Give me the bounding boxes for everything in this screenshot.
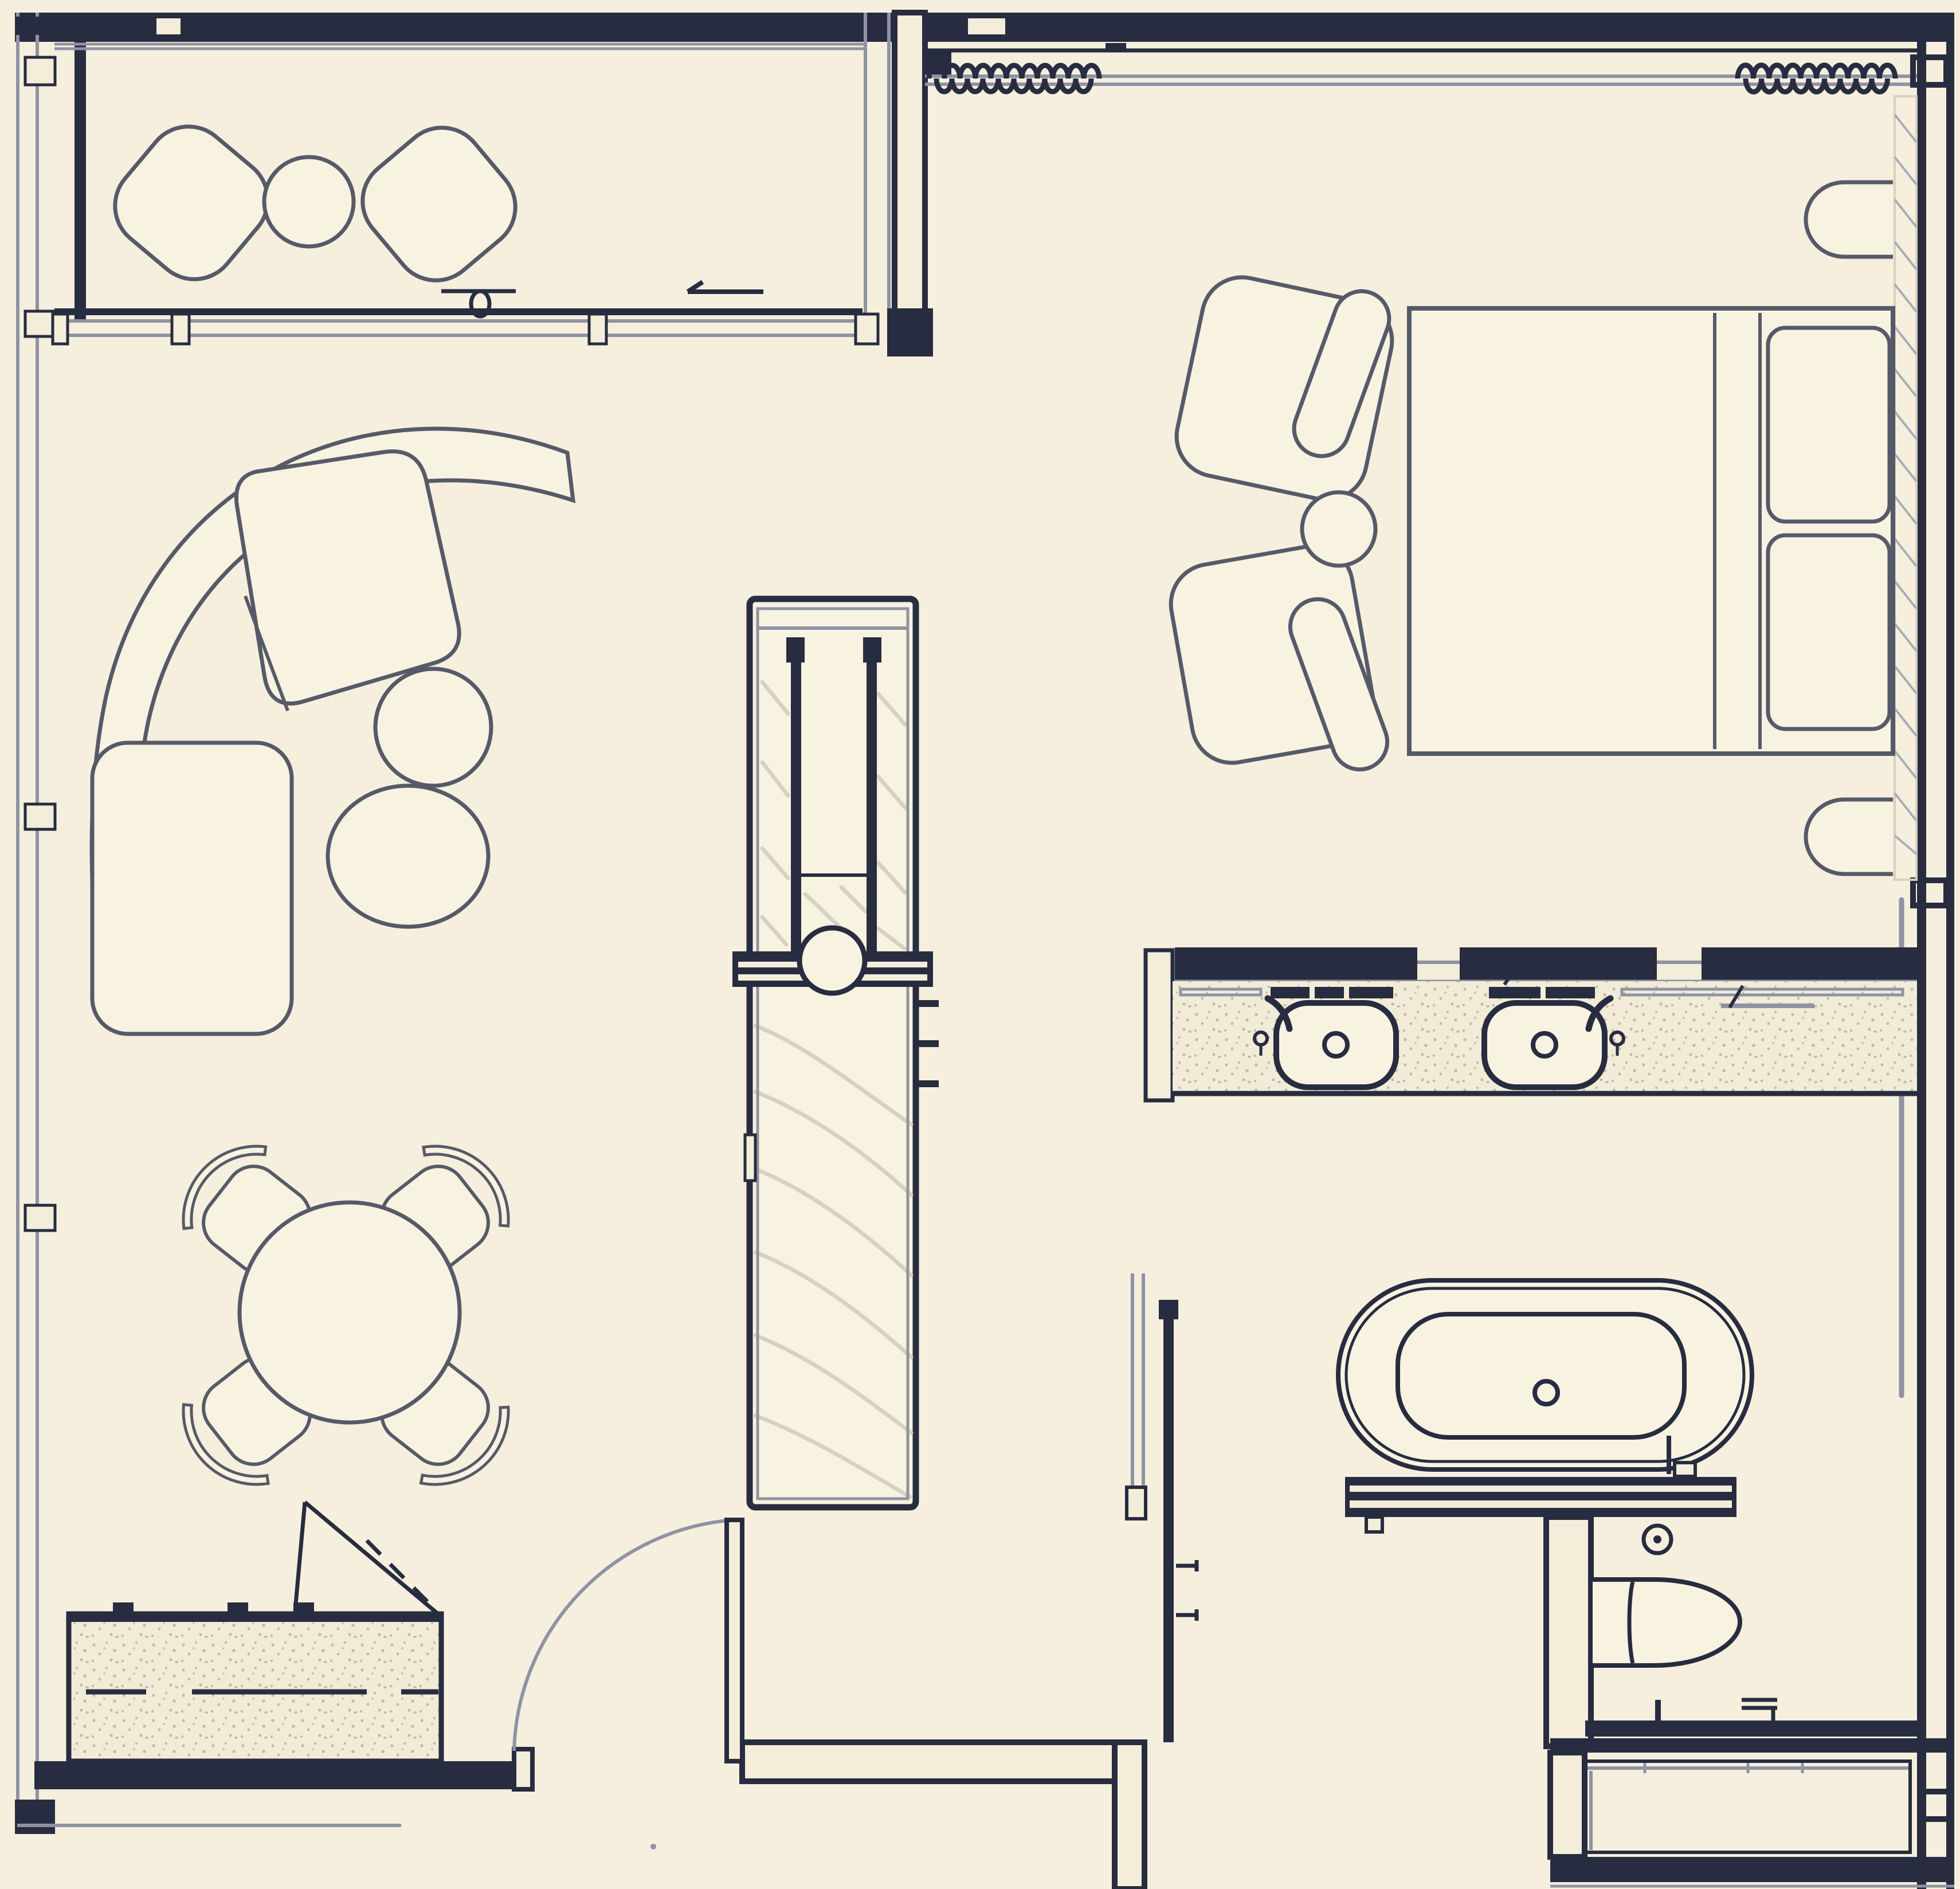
kitchen-counter: [69, 1602, 441, 1761]
bathroom-west-wall: [1163, 1303, 1174, 1742]
wall-node: [1127, 1487, 1146, 1519]
bath-partition-wall: [1175, 947, 1917, 982]
northwest-corner-block: [15, 17, 80, 35]
east-wall-inner-line: [1917, 13, 1926, 1889]
floor-plan-drawing: [0, 0, 1960, 1889]
column-basin-circle: [799, 928, 865, 993]
wall-corner-block: [887, 308, 933, 356]
balcony-side-table: [264, 157, 354, 246]
tub-filler-handle: [1675, 1463, 1695, 1476]
south-return-wall: [1115, 1742, 1144, 1889]
nightstand-top: [1806, 182, 1893, 257]
bathroom-vanity: [1173, 972, 1917, 1095]
nightstand-bottom: [1806, 800, 1893, 874]
sliding-door-mullion: [589, 314, 606, 344]
west-wall-post: [25, 804, 55, 829]
west-wall-post: [25, 311, 55, 336]
wardrobe-media-column: [732, 599, 939, 1507]
bedroom-armchair-top: [1169, 270, 1400, 507]
bedroom-side-table: [1302, 492, 1375, 566]
southwest-corner-block: [15, 1800, 55, 1834]
window-mullion-nub: [1106, 43, 1126, 52]
shower-wc-divider-wall: [1546, 1517, 1591, 1746]
coffee-table-small: [375, 669, 491, 786]
sliding-door-mullion: [53, 314, 68, 344]
toilet-brush-tick: [1655, 1700, 1661, 1721]
bathtub-area: [1338, 1280, 1752, 1532]
east-wall-outer-line: [1946, 13, 1954, 1889]
west-wall-post: [25, 57, 55, 85]
entry-door-leaf: [727, 1520, 742, 1761]
closet-south-wall: [1550, 1857, 1954, 1882]
west-wall-post: [25, 1205, 55, 1230]
column-left-rail: [791, 641, 801, 966]
coffee-table-large: [328, 786, 488, 927]
bedroom-west-wall: [895, 13, 925, 321]
wall-joint-notch: [156, 18, 181, 34]
deck-foot-tab: [1366, 1517, 1382, 1532]
rail-cap: [786, 637, 805, 663]
closet-north-wall: [1550, 1738, 1954, 1753]
bathtub-outer: [1338, 1280, 1752, 1469]
wc-south-wall: [1585, 1721, 1920, 1737]
kitchen-south-wall: [34, 1761, 519, 1789]
pillow: [1768, 328, 1890, 522]
entry-south-wall: [742, 1742, 1118, 1781]
round-dining-table: [240, 1202, 460, 1422]
floor-drain-dot: [1653, 1535, 1661, 1543]
entry-door-post: [514, 1749, 532, 1789]
column-outline: [750, 599, 916, 1507]
wall-end-cap: [1159, 1300, 1178, 1319]
column-right-rail: [867, 641, 877, 966]
pillow: [1768, 535, 1890, 729]
wall-hung-toilet: [1590, 1580, 1740, 1665]
rail-cap: [863, 637, 881, 663]
wall-joint-notch: [968, 18, 1005, 34]
column-handle-notch: [745, 1135, 755, 1181]
sliding-door-mullion: [856, 314, 878, 344]
sliding-door-mullion: [172, 314, 189, 344]
sofa-seat-cushion: [92, 743, 292, 1034]
closet-west-wall: [1550, 1753, 1585, 1857]
floor-plan-page: [0, 0, 1960, 1889]
floor-dot-mark: [650, 1844, 656, 1849]
balcony-inner-wall-line: [75, 17, 86, 321]
vanity-end-panel: [1146, 950, 1173, 1100]
